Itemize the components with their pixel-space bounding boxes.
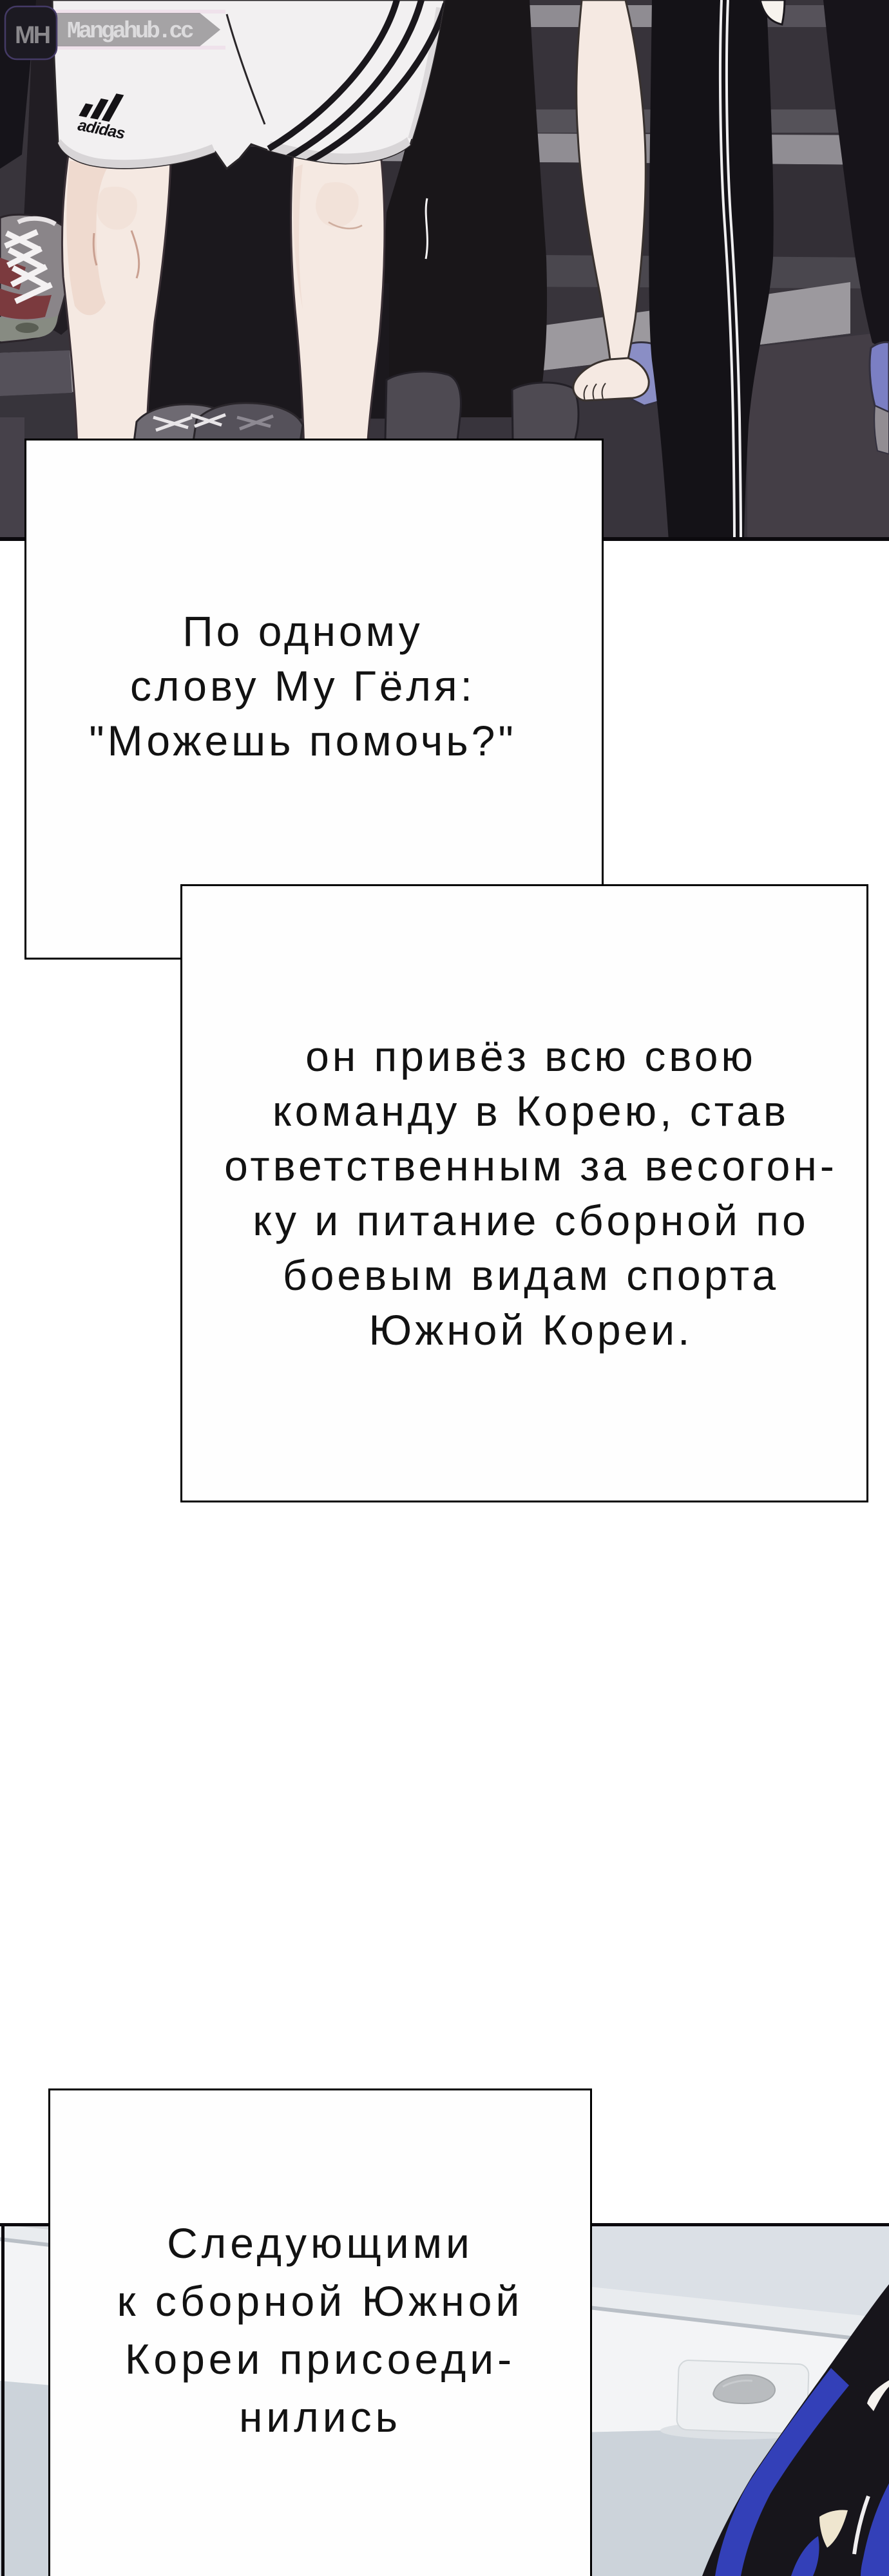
svg-text:MH: MH <box>15 22 50 49</box>
svg-text:Mangahub.cc: Mangahub.cc <box>67 18 193 44</box>
